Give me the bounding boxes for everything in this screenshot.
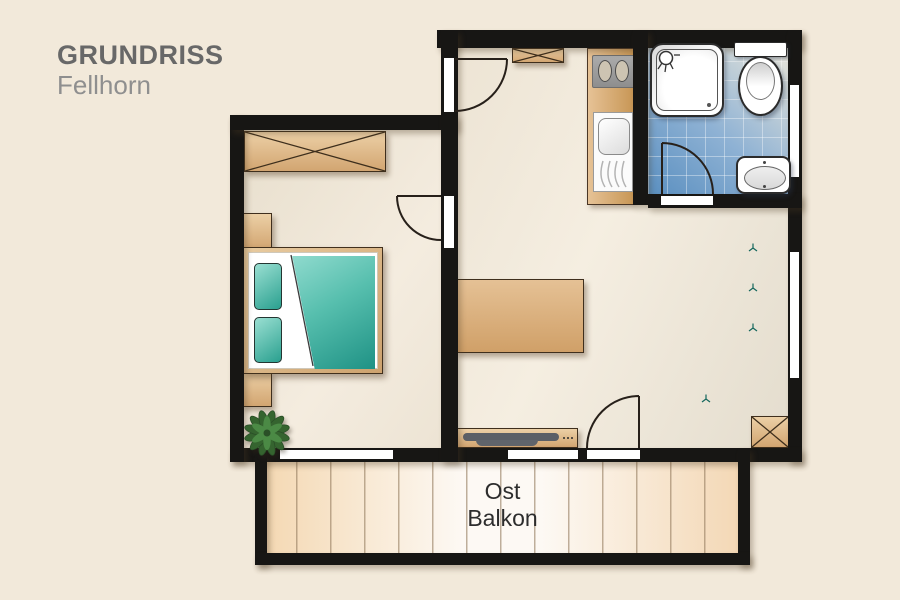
dining-table [455,279,584,353]
tv-sideboard [455,428,578,448]
shower-head-icon [655,47,685,77]
burner [598,60,612,82]
bedroom-door-gap [444,196,454,248]
tv-dot [567,437,569,439]
pillow [254,317,282,363]
bathroom-door-gap [661,196,713,205]
living-window-bottom [508,450,578,459]
mattress [248,252,378,369]
wardrobe [244,131,386,172]
kitchen-sink [593,112,633,192]
shower-drain [707,103,711,107]
balcony-label: Ost Balkon [267,478,738,532]
double-bed [243,247,383,374]
toilet-bowl-inner [746,62,775,100]
entry-cabinet [512,48,564,63]
drain-dot [763,185,766,188]
plant [240,406,295,461]
balcony-label-line2: Balkon [267,505,738,532]
floor-plan: GRUNDRISS Fellhorn Ost Balkon [0,0,900,600]
burner [615,60,629,82]
page-subtitle: Fellhorn [57,70,151,101]
x-cross [245,132,385,171]
nightstand-top [241,213,272,250]
toilet [738,56,783,116]
balcony-wall-bottom [255,553,750,565]
tv-dot [571,437,573,439]
balcony-wall-left [255,455,267,565]
tap-dot [763,161,766,164]
stove [592,55,635,88]
bathroom-window [790,85,799,177]
toilet-tank [734,42,787,57]
page-title: GRUNDRISS [57,40,224,71]
pillow [254,263,282,310]
tv-base [476,440,538,446]
bedroom-window [280,450,393,459]
x-cross [752,417,788,447]
living-window-right [790,252,799,378]
entrance-door-gap [444,58,454,112]
x-cross [513,49,563,62]
drainer-lines [594,113,634,193]
side-table [751,416,789,448]
balcony-wall-right [738,448,750,565]
nightstand-bottom [241,372,272,407]
balcony-door-gap [587,450,640,459]
tv-dot [563,437,565,439]
balcony-label-line1: Ost [267,478,738,505]
bathroom-sink [736,156,791,194]
wall-bedroom-top [230,115,458,130]
wall-kitchen-bath [633,30,648,205]
blanket [285,256,375,369]
